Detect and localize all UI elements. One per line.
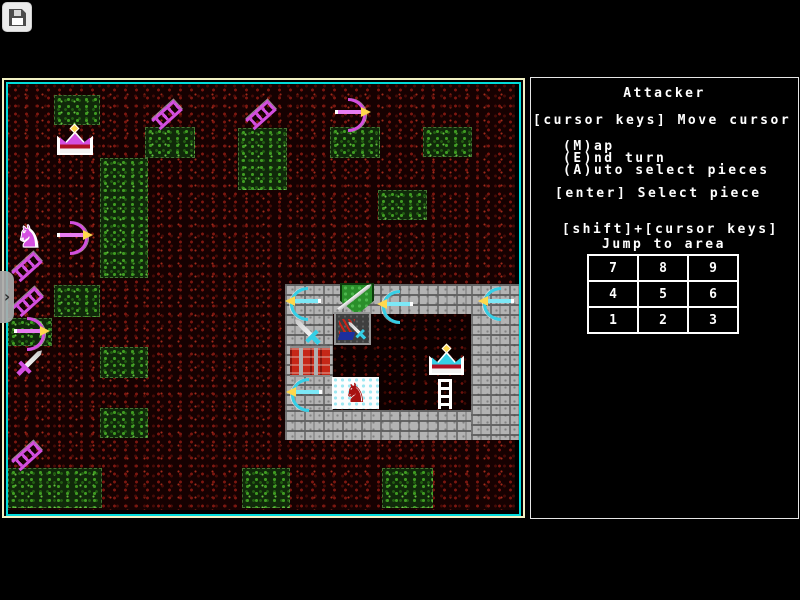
attacker-archer-sprite[interactable] bbox=[335, 98, 371, 126]
defender-shield-sprite[interactable] bbox=[336, 283, 374, 311]
grass-patch bbox=[423, 127, 472, 157]
defender-archer-sprite[interactable] bbox=[478, 287, 514, 315]
keypad-cell-9: 9 bbox=[688, 255, 738, 281]
defender-ladder-sprite[interactable] bbox=[438, 379, 452, 409]
grass-patch bbox=[100, 408, 148, 438]
grass-patch bbox=[54, 95, 100, 125]
grass-patch bbox=[378, 190, 427, 220]
grass-patch bbox=[238, 128, 287, 190]
menu-item-auto-select: (A)uto select pieces bbox=[563, 163, 770, 178]
grass-patch bbox=[382, 468, 433, 508]
grass-patch bbox=[242, 468, 290, 508]
attacker-knight-sprite[interactable]: ♞ bbox=[10, 221, 48, 251]
info-panel: Attacker [cursor keys] Move cursor (M)ap… bbox=[530, 77, 799, 519]
chevron-right-icon: › bbox=[2, 289, 12, 305]
defender-archer-sprite[interactable] bbox=[286, 378, 322, 406]
attacker-king-sprite[interactable] bbox=[57, 129, 93, 155]
floppy-disk-icon bbox=[9, 9, 26, 26]
grass-patch bbox=[54, 285, 100, 317]
grass-patch bbox=[145, 127, 195, 158]
grass-patch bbox=[8, 468, 102, 508]
sidebar-expand-tab[interactable]: › bbox=[0, 271, 14, 323]
grass-patch bbox=[100, 347, 148, 378]
save-button[interactable] bbox=[2, 2, 32, 32]
keypad-cell-4: 4 bbox=[588, 281, 638, 307]
keypad-cell-1: 1 bbox=[588, 307, 638, 333]
keypad-cell-6: 6 bbox=[688, 281, 738, 307]
game-screen: › ♞♞ Attacker [cursor keys] Move cursor … bbox=[0, 0, 800, 600]
help-enter-select: [enter] Select piece bbox=[555, 186, 762, 201]
keypad-cell-5: 5 bbox=[638, 281, 688, 307]
selected-knight-sprite[interactable]: ♞ bbox=[332, 377, 379, 409]
attacker-archer-sprite[interactable] bbox=[57, 221, 93, 249]
castle-gate-sprite[interactable] bbox=[290, 346, 330, 377]
defender-archer-sprite[interactable] bbox=[377, 290, 413, 318]
grass-patch bbox=[330, 127, 380, 158]
help-cursor-keys: [cursor keys] Move cursor bbox=[533, 113, 791, 128]
red-knight-icon: ♞ bbox=[346, 379, 364, 407]
defender-king-sprite[interactable] bbox=[429, 349, 464, 375]
help-jump-to-area: Jump to area bbox=[602, 237, 726, 252]
panel-title: Attacker bbox=[531, 86, 798, 101]
keypad-cell-2: 2 bbox=[638, 307, 688, 333]
keypad-cell-7: 7 bbox=[588, 255, 638, 281]
keypad-area-grid: 789456123 bbox=[587, 254, 739, 334]
help-shift-cursor: [shift]+[cursor keys] bbox=[562, 222, 779, 237]
grass-patch bbox=[100, 158, 148, 278]
keypad-cell-3: 3 bbox=[688, 307, 738, 333]
keypad-cell-8: 8 bbox=[638, 255, 688, 281]
